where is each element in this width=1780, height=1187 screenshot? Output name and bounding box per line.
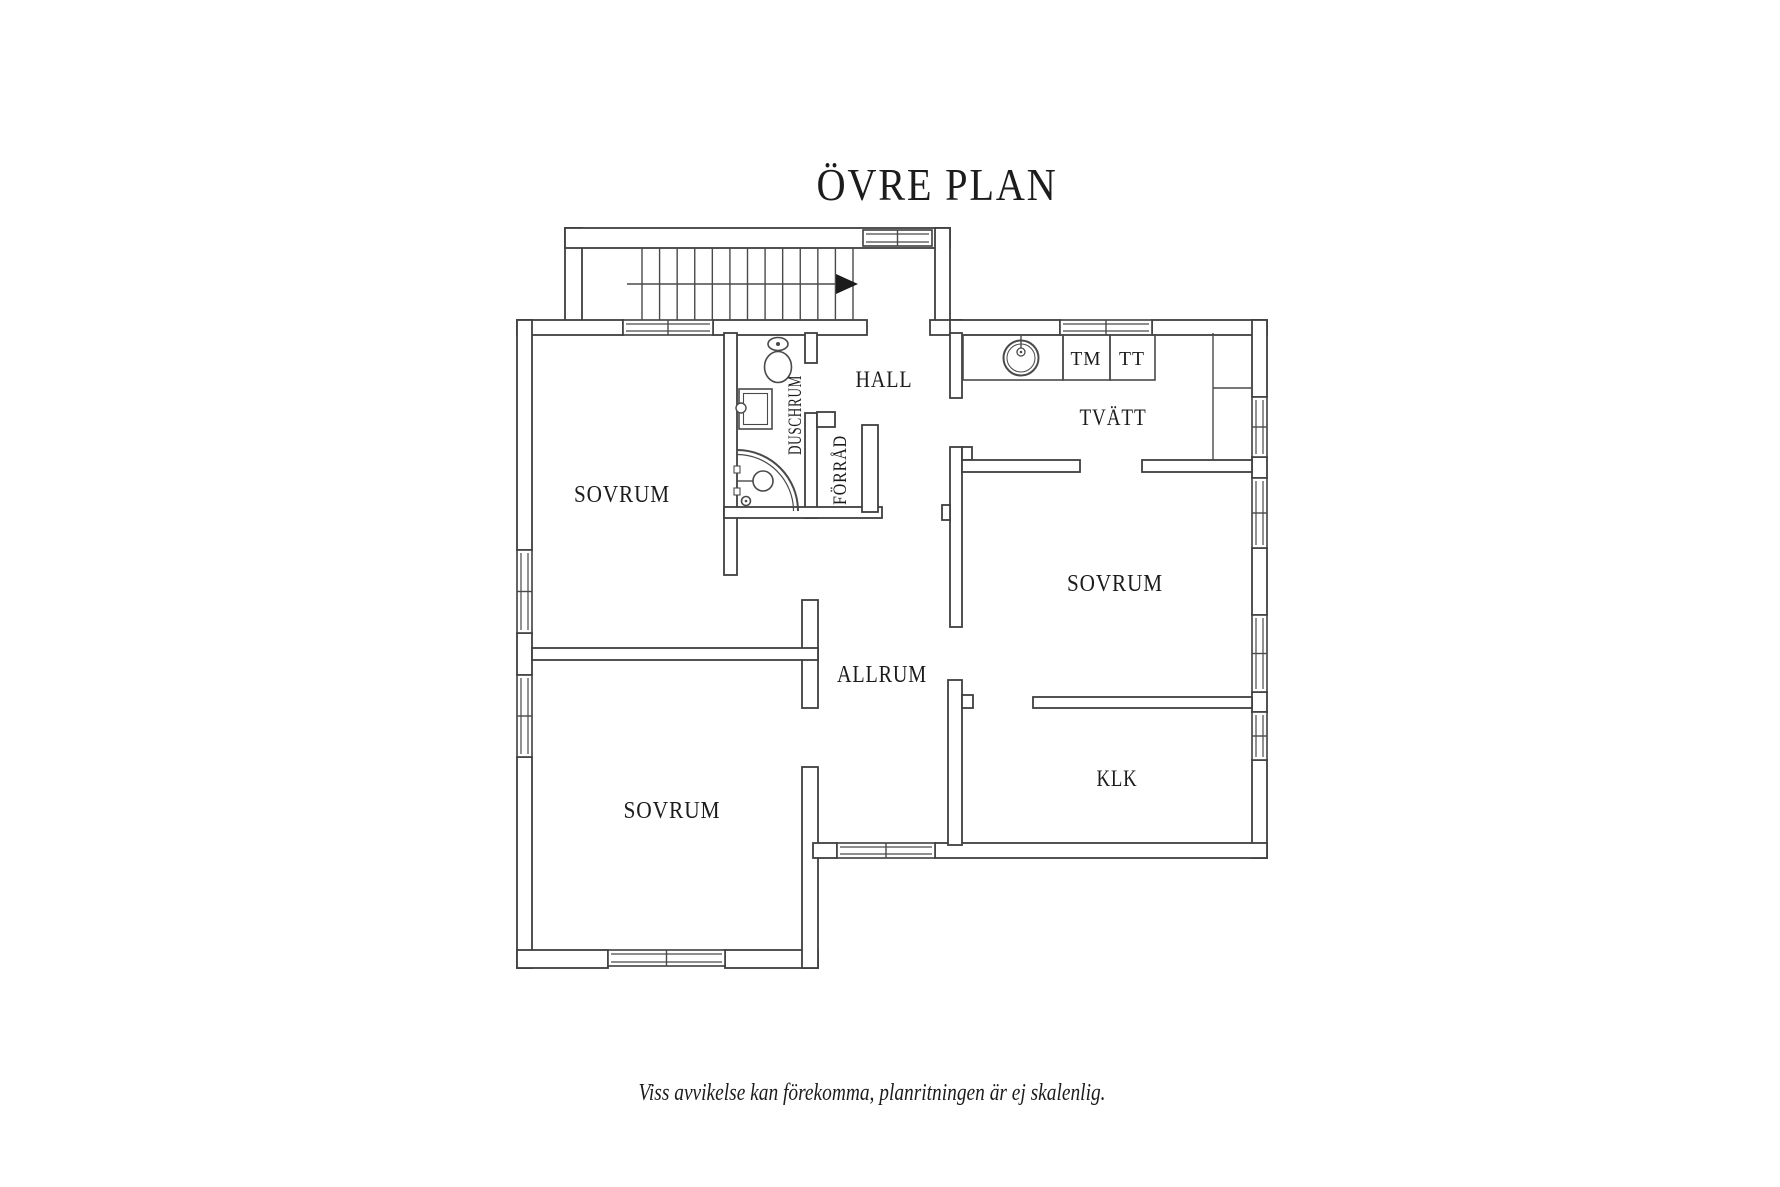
room-label-klk: KLK [1097,766,1138,791]
room-label-tvatt: TVÄTT [1080,405,1147,430]
labels-layer: SOVRUMSOVRUMSOVRUMALLRUMHALLTVÄTTKLKDUSC… [574,348,1163,824]
room-label-duschrum: DUSCHRUM [785,375,806,455]
floor-plan: SOVRUMSOVRUMSOVRUMALLRUMHALLTVÄTTKLKDUSC… [0,0,1780,1187]
floorplan-page: SOVRUMSOVRUMSOVRUMALLRUMHALLTVÄTTKLKDUSC… [0,0,1780,1187]
room-label-sovrum-right: SOVRUM [1067,571,1163,597]
stairs-direction-arrow-icon [836,274,858,294]
staircase [627,248,858,320]
thin-lines-layer [1213,333,1252,460]
room-label-hall: HALL [856,367,913,392]
disclaimer-text: Viss avvikelse kan förekomma, planritnin… [639,1080,1106,1106]
appliance-label-tm: TM [1071,348,1102,370]
room-label-sovrum-top-left: SOVRUM [574,482,670,508]
corner-shower-icon [734,450,798,511]
page-title: ÖVRE PLAN [817,159,1058,210]
room-label-allrum: ALLRUM [837,662,927,688]
appliance-label-tt: TT [1119,348,1145,370]
washbasin-icon [736,389,772,429]
room-label-sovrum-bottom-left: SOVRUM [624,798,721,824]
laundry-sink-icon [963,335,1063,380]
room-label-forrad: FÖRRÅD [830,435,851,505]
